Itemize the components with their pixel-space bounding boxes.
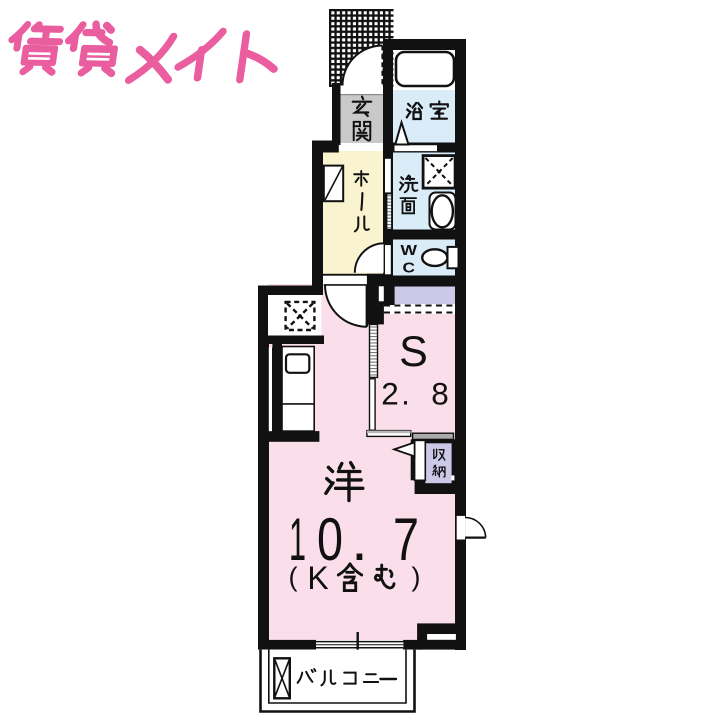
svg-text:.: . bbox=[401, 376, 410, 412]
svg-text:2: 2 bbox=[381, 376, 399, 412]
svg-text:(: ( bbox=[289, 562, 298, 592]
svg-text:K: K bbox=[307, 560, 328, 596]
svg-text:): ) bbox=[412, 562, 421, 592]
svg-text:W: W bbox=[401, 243, 418, 259]
svg-text:C: C bbox=[403, 261, 416, 277]
svg-text:S: S bbox=[399, 328, 428, 376]
svg-text:8: 8 bbox=[431, 376, 449, 412]
svg-text:.: . bbox=[351, 506, 368, 573]
